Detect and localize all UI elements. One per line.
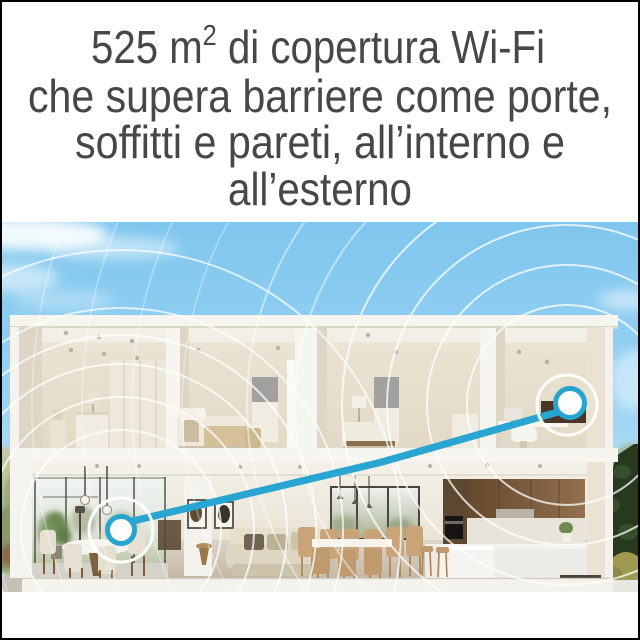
svg-text:all’esterno: all’esterno [228, 163, 412, 215]
svg-text:che supera barriere come porte: che supera barriere come porte, [28, 70, 612, 122]
svg-text:525 m2 di copertura Wi-Fi: 525 m2 di copertura Wi-Fi [91, 20, 545, 73]
svg-text:soffitti e pareti, all’interno: soffitti e pareti, all’interno e [75, 116, 565, 168]
